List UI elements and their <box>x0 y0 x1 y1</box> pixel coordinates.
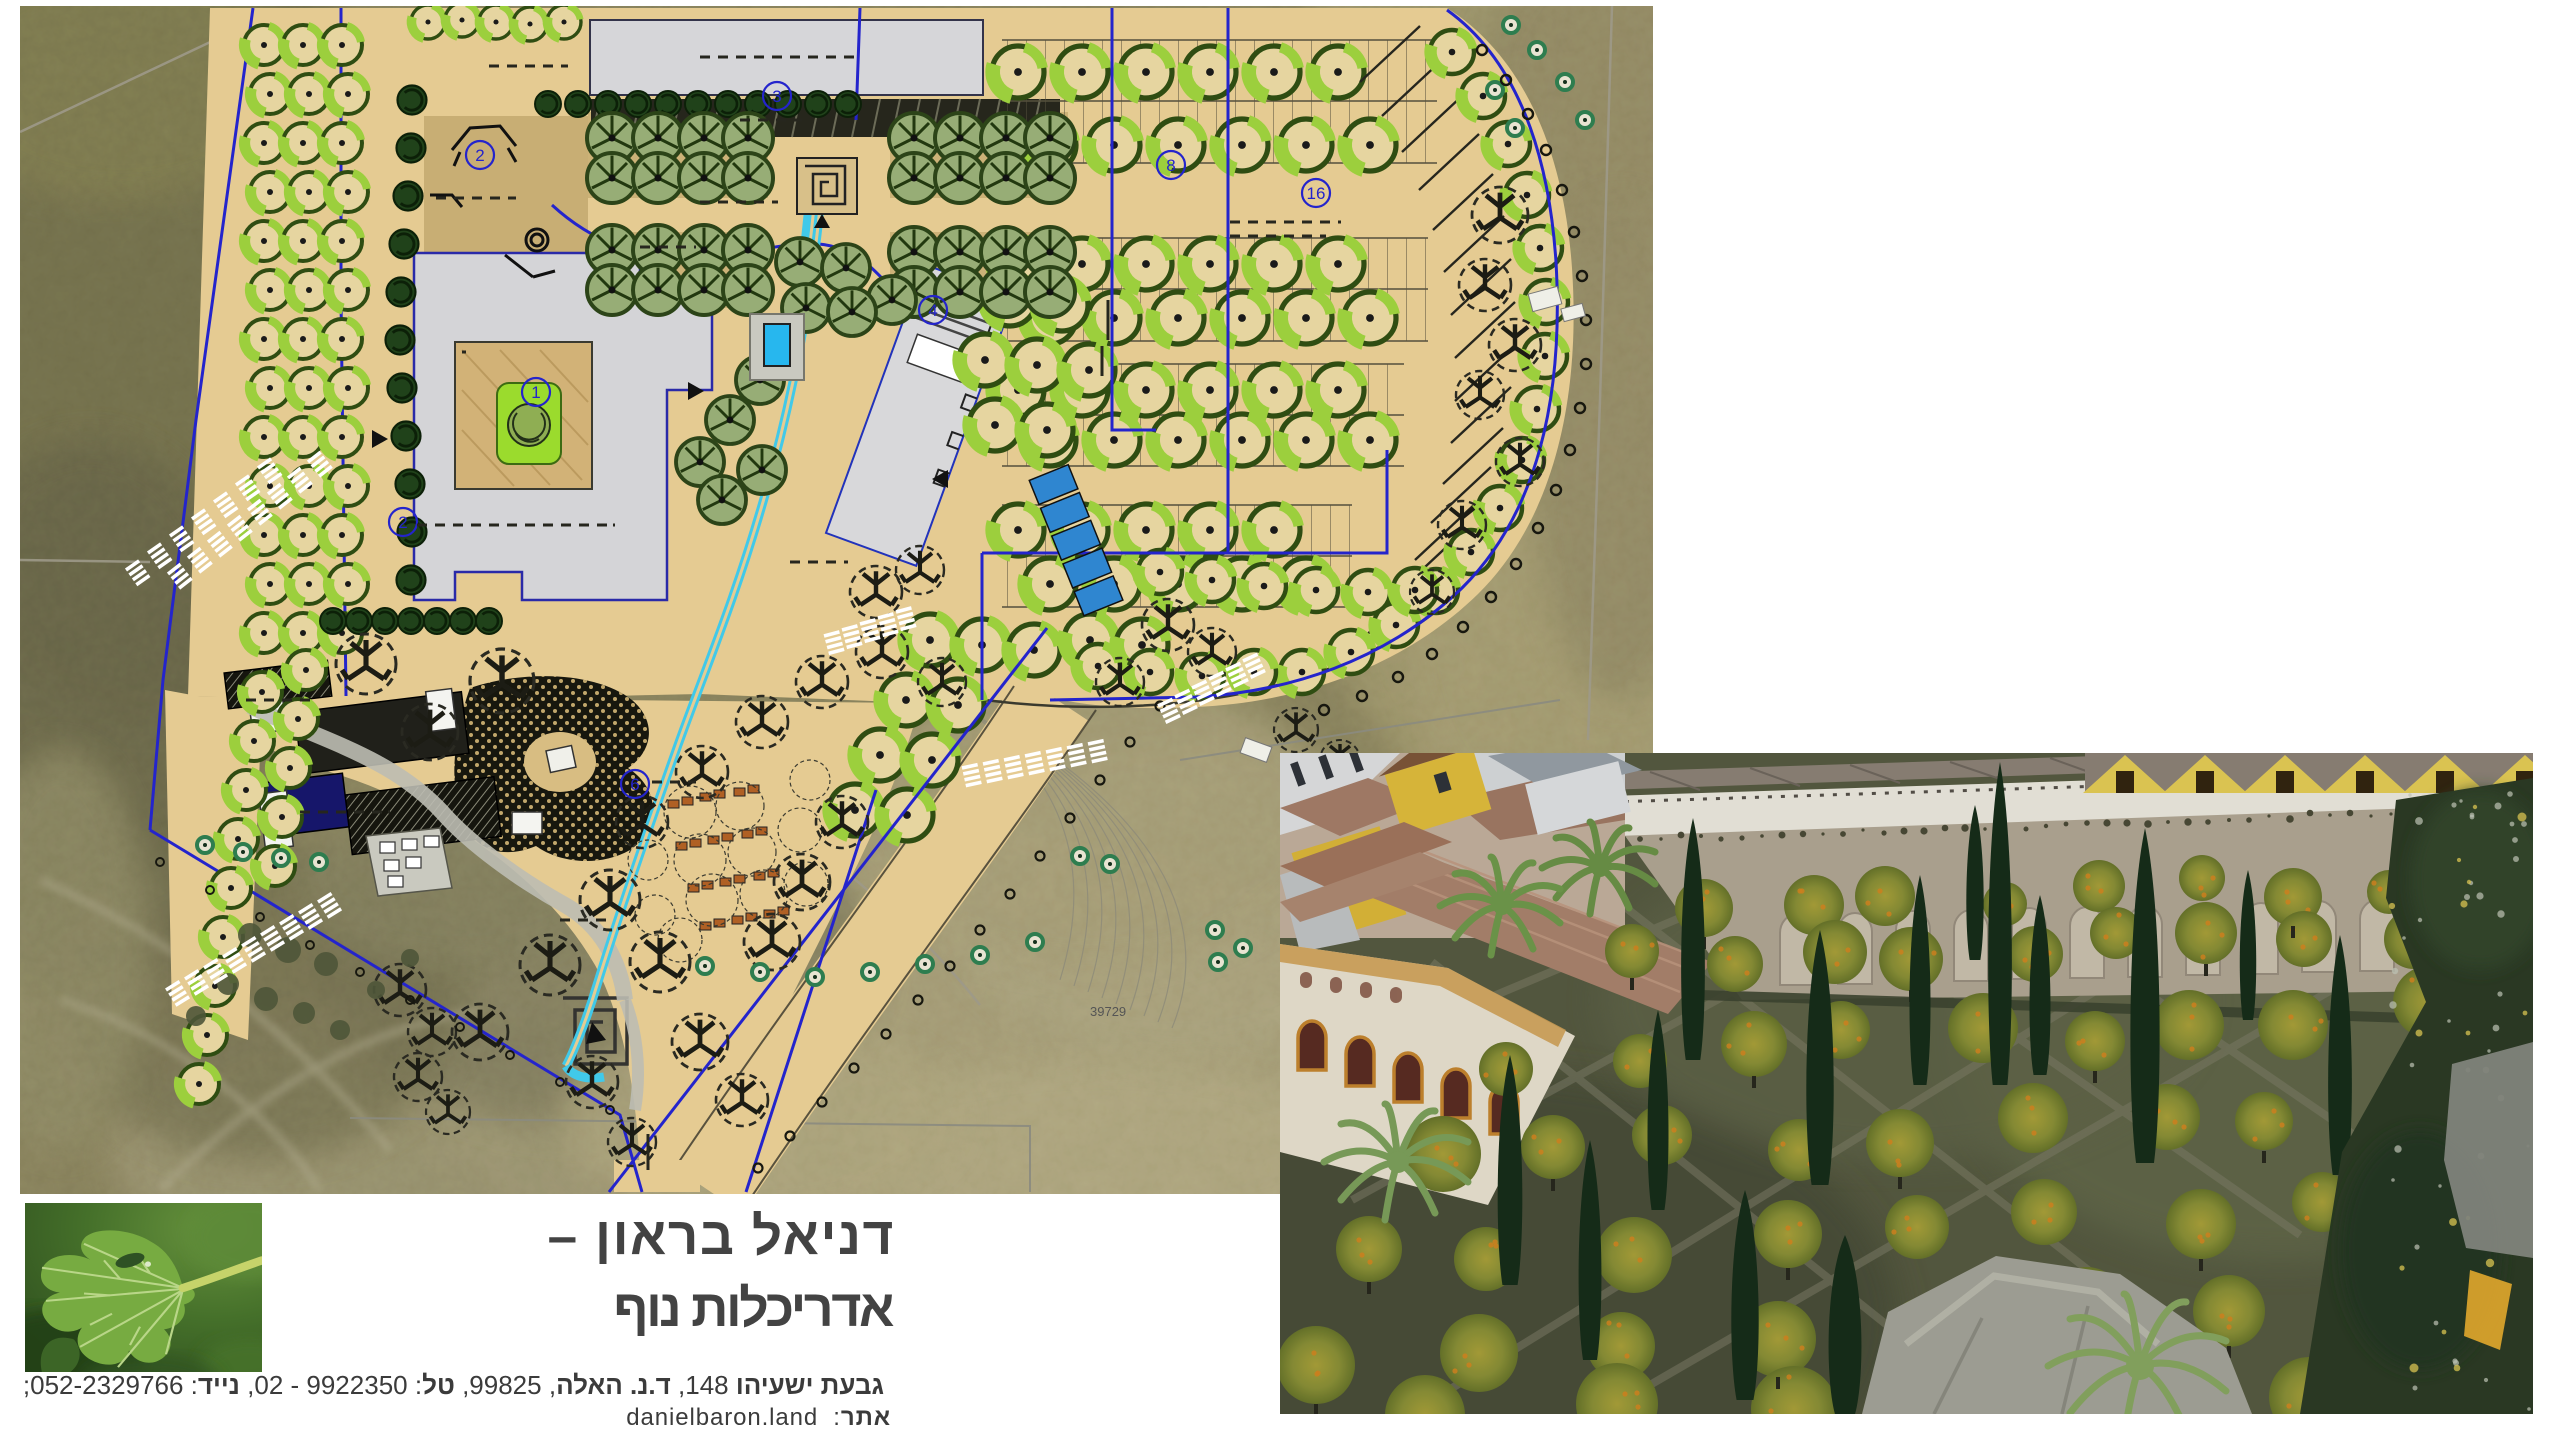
svg-text:8: 8 <box>1166 156 1175 175</box>
svg-text:39729: 39729 <box>1090 1004 1126 1019</box>
svg-text:6: 6 <box>630 775 639 794</box>
svg-text:4: 4 <box>928 301 937 320</box>
svg-text:2: 2 <box>398 513 407 532</box>
svg-text:16: 16 <box>1307 184 1326 203</box>
svg-text:3: 3 <box>772 87 781 106</box>
svg-text:2: 2 <box>475 146 484 165</box>
svg-text:1: 1 <box>531 383 540 402</box>
